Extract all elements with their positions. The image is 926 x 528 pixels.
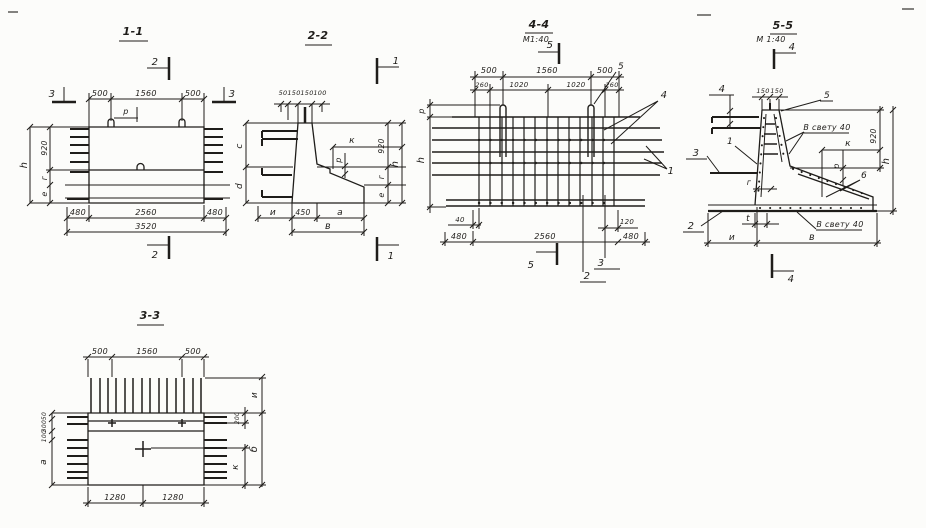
- dim-label: 500: [92, 347, 108, 356]
- dim-label: c: [235, 143, 245, 148]
- rebar-stubs: [67, 129, 223, 199]
- callout-label: 1: [727, 137, 733, 147]
- dim-label: t: [746, 214, 750, 224]
- dim-label: 2560: [534, 232, 556, 241]
- dim-label: 150: [756, 87, 769, 95]
- callout-label: 4: [661, 90, 668, 101]
- dim-label: 480: [207, 208, 223, 217]
- dim-label: 2560: [135, 208, 157, 217]
- section-2-2: 2-2 1 1 50 150 150 100 c d к р 920 г е h…: [235, 29, 406, 262]
- clear-note: В свету 40: [816, 220, 863, 229]
- dim-label: 100: [41, 430, 48, 442]
- dim-label: к: [845, 139, 851, 149]
- dim-label: а: [337, 208, 343, 218]
- center-marks: [108, 419, 186, 457]
- wall-outline: [708, 110, 877, 211]
- callout-label: 5: [618, 62, 624, 72]
- section-title: 1-1: [123, 25, 144, 38]
- dim-label: и: [270, 208, 276, 218]
- dim-label: б: [248, 446, 260, 452]
- section-3-3: 3-3 500 1560 500 50 300 100 а и 200 б к …: [39, 309, 266, 507]
- marker-label: 1: [388, 251, 395, 262]
- dim-label: 1560: [536, 66, 558, 75]
- dim-label: 40: [455, 216, 465, 224]
- marker-label: 2: [584, 271, 591, 282]
- dim-label: d: [235, 183, 245, 189]
- dim-label: е: [377, 192, 386, 197]
- dim-label: р: [122, 107, 128, 116]
- callout-label: 2: [688, 221, 695, 232]
- blueprint-svg: 1-1 2 3 3 2 500 1560 500 р 920 г е h 480…: [0, 0, 926, 528]
- dim-label: h: [881, 158, 892, 165]
- bristle-bars: [91, 378, 201, 413]
- marker-label: 2: [152, 250, 159, 261]
- dim-label: к: [349, 136, 355, 146]
- section-1-1: 1-1 2 3 3 2 500 1560 500 р 920 г е h 480…: [19, 25, 236, 261]
- dim-label: 3520: [135, 222, 157, 231]
- marker-label: 5: [528, 260, 535, 271]
- linework-thin: [27, 41, 230, 245]
- dim-label: 920: [869, 128, 878, 143]
- dim-label: 500: [185, 89, 201, 98]
- dim-label: 1020: [566, 81, 585, 89]
- dim-label: р: [417, 108, 426, 114]
- marker-label: 4: [789, 42, 796, 53]
- dim-label: 150: [287, 89, 300, 97]
- dim-label: е: [40, 191, 49, 196]
- marker-label: 2: [152, 57, 159, 68]
- callout-label: 3: [693, 148, 700, 159]
- dim-label: р: [832, 163, 841, 169]
- marker-label: 3: [229, 89, 236, 100]
- dim-label: в: [809, 232, 815, 243]
- dim-label: 1560: [136, 347, 158, 356]
- section-title: 4-4: [528, 18, 550, 31]
- dim-label: 260: [605, 81, 618, 89]
- dim-label: 200: [234, 412, 241, 424]
- scale-label: М1:40: [523, 35, 549, 44]
- callout-label: 6: [861, 171, 867, 181]
- section-4-4: 4-4 М1:40 5 500 1560 500 260 1020 1020 2…: [416, 18, 674, 282]
- dim-label: 100: [313, 89, 326, 97]
- dim-label: 1020: [509, 81, 528, 89]
- marker-label: 3: [598, 258, 605, 269]
- dim-label: и: [250, 392, 260, 398]
- mesh-horizontal-bars: [432, 105, 664, 206]
- marker-label: 1: [393, 56, 400, 67]
- dim-label: 50: [41, 412, 48, 420]
- dim-label: 1280: [162, 493, 184, 502]
- wall-profile-hatched: [292, 123, 364, 203]
- marker-label: 5: [547, 40, 554, 51]
- dim-label: в: [325, 221, 331, 232]
- dim-label: г: [40, 175, 49, 180]
- callout-label: 1: [668, 166, 675, 177]
- dim-label: 920: [377, 138, 386, 153]
- linework-thin: [683, 34, 897, 271]
- dim-label: и: [729, 233, 735, 243]
- dim-label: 50: [279, 89, 288, 97]
- scale-label: М 1:40: [756, 35, 785, 44]
- dim-label: 260: [475, 81, 488, 89]
- dim-label: 920: [40, 140, 49, 155]
- dim-label: 450: [295, 208, 310, 217]
- dim-label: р: [334, 157, 343, 163]
- dim-label: h: [416, 157, 427, 164]
- dim-label: 150: [300, 89, 313, 97]
- dim-label: 500: [92, 89, 108, 98]
- clear-note: В свету 40: [803, 123, 850, 132]
- marker-label: 3: [49, 89, 56, 100]
- dim-label: 1280: [104, 493, 126, 502]
- dim-label: 480: [70, 208, 86, 217]
- callout-label: 5: [824, 91, 830, 101]
- dim-label: 150: [770, 87, 783, 95]
- dim-label: к: [231, 464, 241, 470]
- dim-label: г: [747, 178, 752, 187]
- section-title: 3-3: [140, 309, 161, 322]
- drawing-sheet: 1-1 2 3 3 2 500 1560 500 р 920 г е h 480…: [0, 0, 926, 528]
- dim-label: 480: [623, 232, 639, 241]
- section-title: 2-2: [308, 29, 329, 42]
- section-5-5: 5-5 М 1:40 4 150 150 4 5 В свету 40 В св…: [683, 19, 897, 285]
- dim-label: 500: [185, 347, 201, 356]
- dim-label: 500: [597, 66, 613, 75]
- dim-label: 120: [620, 218, 635, 226]
- section-title: 5-5: [773, 19, 794, 32]
- linework-body: [89, 119, 204, 203]
- dim-label: 500: [481, 66, 497, 75]
- scan-artifacts: [8, 9, 914, 15]
- dim-label: h: [390, 161, 401, 168]
- marker-label: 4: [788, 274, 795, 285]
- dim-label: а: [39, 459, 49, 465]
- dim-label: 1560: [135, 89, 157, 98]
- dim-label: 480: [451, 232, 467, 241]
- callout-label: 4: [719, 84, 726, 95]
- dim-label: h: [19, 162, 30, 169]
- dim-label: г: [377, 174, 386, 179]
- section-flags: [772, 49, 774, 278]
